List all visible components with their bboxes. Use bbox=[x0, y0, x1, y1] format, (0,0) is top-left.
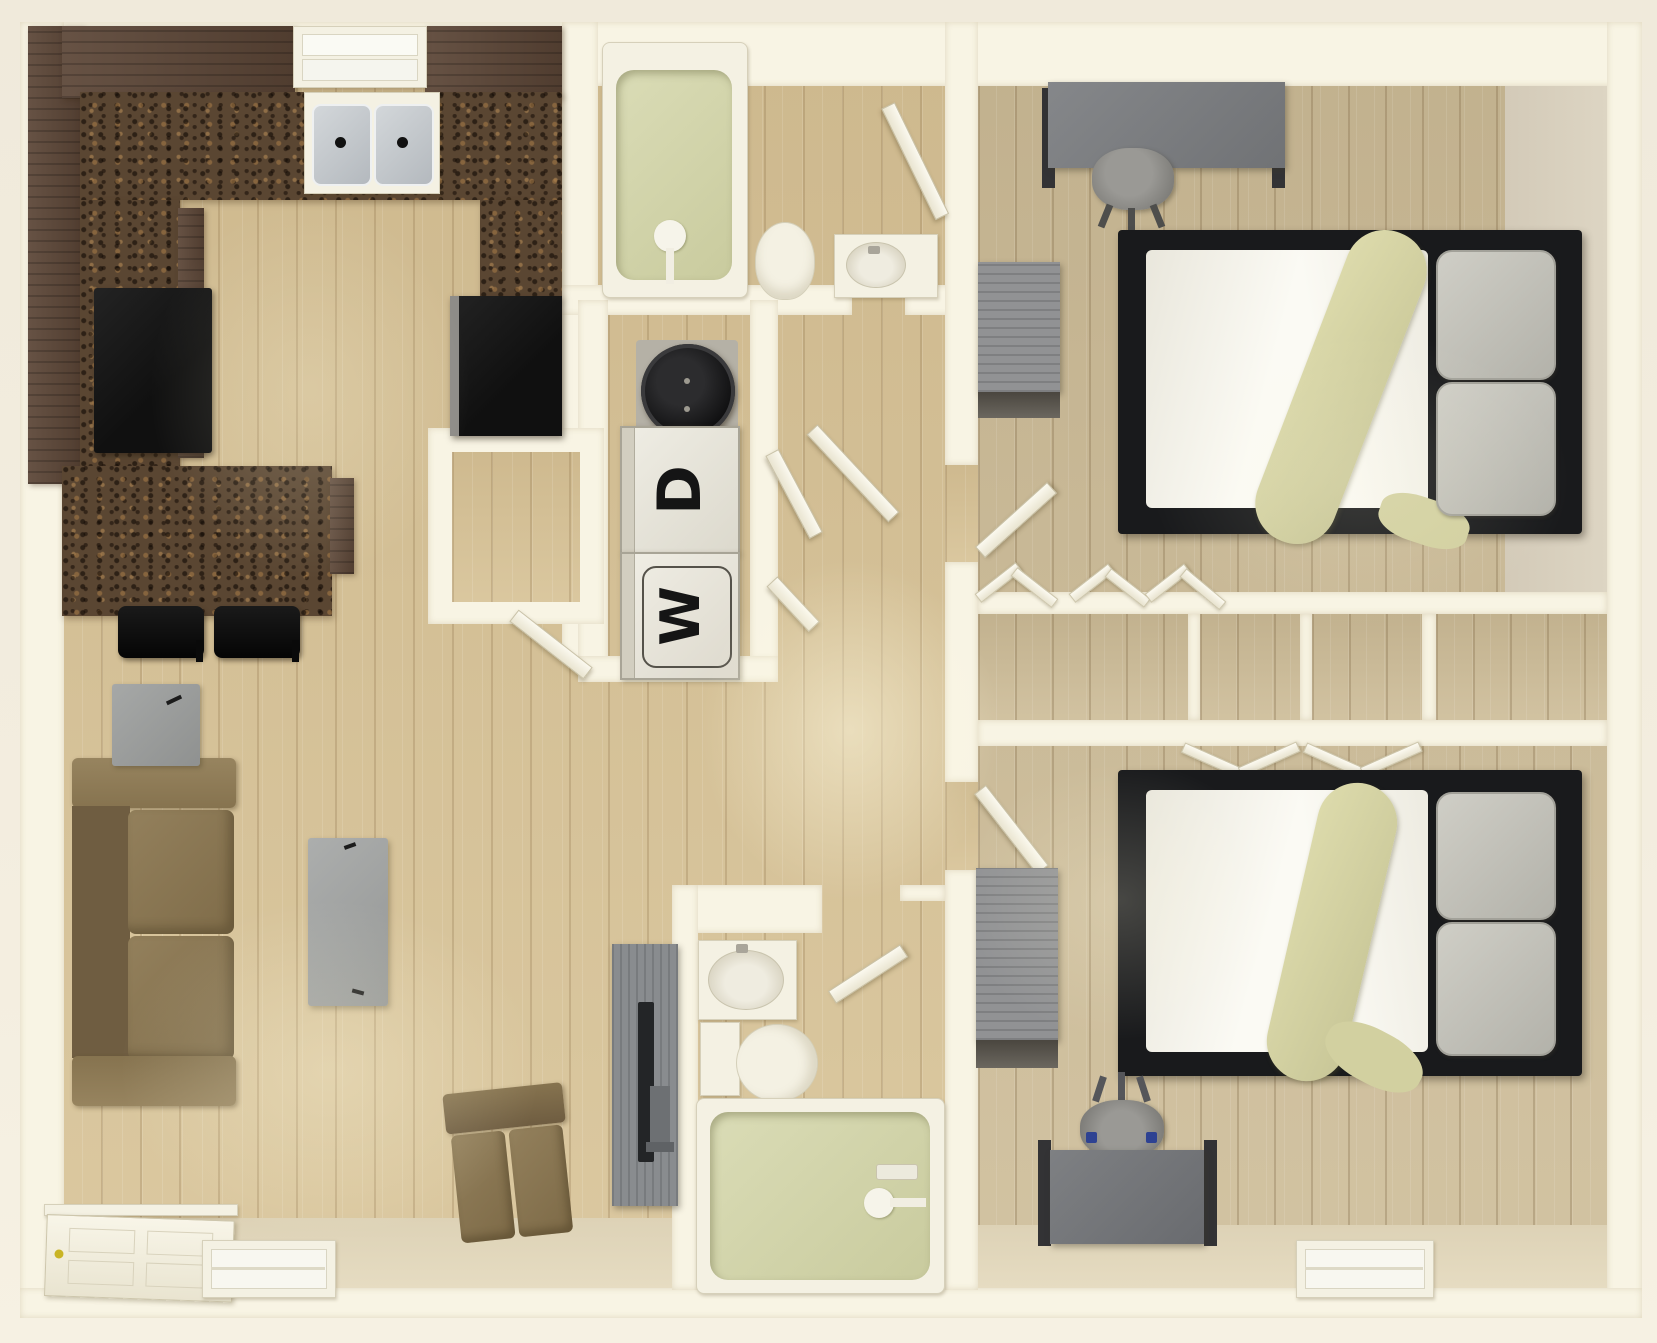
sofa-back bbox=[72, 806, 130, 1058]
bed-bottom-pillow-1 bbox=[1436, 792, 1556, 920]
dresser-top-bedroom-front bbox=[978, 392, 1060, 418]
bed-top-pillow-1 bbox=[1436, 250, 1556, 380]
office-chair-bottom-armrest-left bbox=[1086, 1132, 1097, 1143]
range-handle bbox=[450, 296, 459, 436]
apartment-floor-plan: D W bbox=[0, 0, 1657, 1343]
dryer-unit: D bbox=[620, 426, 740, 554]
washer-unit: W bbox=[620, 552, 740, 680]
armchair-cushion-left bbox=[451, 1130, 516, 1243]
bed-bottom-pillow-2 bbox=[1436, 922, 1556, 1056]
wall-bathroom2-top-stub bbox=[900, 885, 945, 901]
desk-bottom-bedroom bbox=[1050, 1150, 1204, 1244]
sofa-arm-bottom bbox=[72, 1056, 236, 1106]
bathtub2-handle bbox=[876, 1164, 918, 1180]
vanity2-faucet bbox=[736, 944, 748, 953]
living-room-window bbox=[202, 1240, 336, 1298]
armchair bbox=[442, 1082, 577, 1248]
bathtub2-basin bbox=[710, 1112, 930, 1280]
bar-stool-2-leg bbox=[292, 640, 299, 662]
office-chair-bottom-spoke-2 bbox=[1118, 1072, 1125, 1100]
vanity1-faucet bbox=[868, 246, 880, 254]
kitchen-window-pane-top bbox=[302, 34, 418, 56]
floor-door-gap-bottom bbox=[945, 782, 978, 870]
sofa bbox=[72, 758, 236, 1106]
office-chair-top-bedroom bbox=[1092, 148, 1174, 210]
floor-door-gap-top bbox=[945, 465, 978, 562]
closet-compartment-1 bbox=[978, 614, 1188, 720]
bedroom-bottom-window-mullion bbox=[1305, 1267, 1423, 1270]
end-table bbox=[112, 684, 200, 766]
entry-door-knob bbox=[54, 1249, 63, 1258]
bathtub1-faucet-stem bbox=[666, 248, 674, 284]
office-chair-bottom-armrest-right bbox=[1146, 1132, 1157, 1143]
wall-hall-bedroom-mid bbox=[945, 562, 978, 782]
kitchen-island-breakfast-bar bbox=[62, 466, 332, 616]
dresser-bottom-bedroom-front bbox=[976, 1040, 1058, 1068]
washer-letter: W bbox=[618, 558, 742, 674]
closet-divider-1 bbox=[1188, 614, 1200, 720]
kitchen-upper-cabinets-top-right bbox=[425, 26, 562, 98]
closet-compartment-2 bbox=[1200, 614, 1300, 720]
bathtub2-faucet-stem bbox=[890, 1198, 926, 1207]
living-room-window-mullion bbox=[211, 1267, 325, 1270]
toilet1-bowl bbox=[755, 222, 815, 300]
toilet2-bowl bbox=[736, 1024, 818, 1102]
vanity2-basin bbox=[708, 950, 784, 1010]
sofa-cushion-1 bbox=[128, 810, 234, 934]
dresser-top-bedroom bbox=[978, 262, 1060, 392]
water-heater-dot-1 bbox=[684, 378, 690, 384]
wall-laundry-right bbox=[750, 300, 778, 660]
toilet2-tank bbox=[700, 1022, 740, 1096]
wall-hall-bedroom-upper bbox=[945, 22, 978, 465]
armchair-cushion-right bbox=[508, 1124, 573, 1237]
sofa-cushion-2 bbox=[128, 936, 234, 1060]
tv-mount-base bbox=[646, 1142, 674, 1152]
bar-stool-1-leg bbox=[196, 640, 203, 662]
kitchen-sink-drain-left bbox=[335, 137, 346, 148]
entry-door-panel-1 bbox=[69, 1228, 136, 1254]
bed-top-pillow-2 bbox=[1436, 382, 1556, 516]
dresser-bottom-bedroom bbox=[976, 868, 1058, 1040]
kitchen-upper-cabinets-top-left bbox=[62, 26, 295, 98]
desk-top-bedroom bbox=[1048, 82, 1285, 168]
water-heater bbox=[641, 344, 735, 438]
closet-divider-3 bbox=[1422, 614, 1436, 720]
tv-mount-arm bbox=[650, 1086, 670, 1146]
desk-bottom-bedroom-leg-right bbox=[1204, 1140, 1217, 1246]
pantry-floor bbox=[452, 452, 580, 602]
wall-hall-bedroom-lower bbox=[945, 870, 978, 1290]
bar-stool-2 bbox=[214, 606, 300, 658]
wall-outer-right bbox=[1607, 22, 1642, 1318]
kitchen-island-cabinet-face bbox=[330, 478, 354, 574]
closet-divider-2 bbox=[1300, 614, 1312, 720]
range-stove bbox=[450, 296, 562, 436]
water-heater-dot-2 bbox=[684, 406, 690, 412]
refrigerator bbox=[94, 288, 212, 453]
closet-compartment-4 bbox=[1436, 614, 1607, 720]
kitchen-counter-right-run bbox=[480, 200, 562, 298]
kitchen-window bbox=[293, 26, 427, 88]
bedroom-bottom-window bbox=[1296, 1240, 1434, 1298]
kitchen-window-pane-bottom bbox=[302, 59, 418, 81]
entry-door-panel-3 bbox=[67, 1260, 134, 1286]
coffee-table bbox=[308, 838, 388, 1006]
closet-compartment-3 bbox=[1312, 614, 1422, 720]
dryer-letter: D bbox=[618, 432, 742, 548]
kitchen-sink-drain-right bbox=[397, 137, 408, 148]
bar-stool-1 bbox=[118, 606, 204, 658]
